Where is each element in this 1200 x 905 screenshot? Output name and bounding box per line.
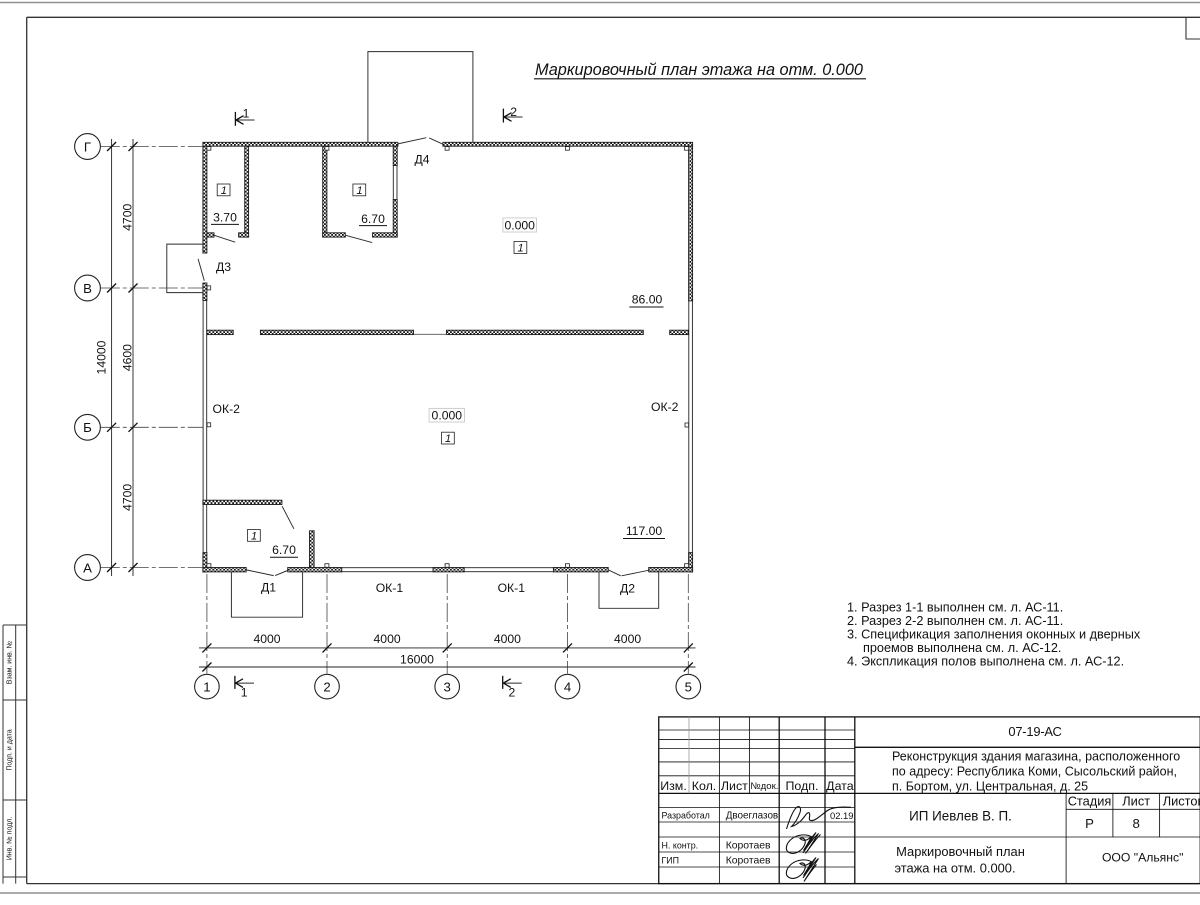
svg-text:Д3: Д3: [216, 260, 231, 274]
svg-text:проемов выполнена см. л. АС-12: проемов выполнена см. л. АС-12.: [863, 641, 1061, 655]
svg-text:5: 5: [685, 679, 692, 694]
svg-text:6.70: 6.70: [361, 212, 385, 226]
svg-text:Б: Б: [83, 420, 92, 435]
svg-text:1: 1: [445, 433, 451, 445]
svg-text:В: В: [83, 281, 92, 296]
svg-text:07-19-АС: 07-19-АС: [1008, 724, 1061, 739]
svg-text:этажа на отм. 0.000.: этажа на отм. 0.000.: [894, 860, 1015, 875]
svg-text:ОК-2: ОК-2: [651, 400, 679, 414]
svg-text:4000: 4000: [253, 632, 280, 646]
svg-text:ООО "Альянс": ООО "Альянс": [1102, 851, 1184, 865]
svg-text:по адресу: Республика Коми, Сы: по адресу: Республика Коми, Сысольский р…: [892, 764, 1177, 778]
svg-text:Взам. инв. №: Взам. инв. №: [7, 641, 14, 684]
svg-text:6.70: 6.70: [272, 543, 296, 557]
svg-text:1: 1: [251, 531, 257, 543]
svg-text:16000: 16000: [400, 653, 434, 667]
svg-text:4700: 4700: [121, 484, 135, 511]
svg-text:1: 1: [241, 686, 248, 700]
svg-text:Разработал: Разработал: [662, 810, 710, 820]
svg-text:4: 4: [564, 679, 571, 694]
svg-text:Листов: Листов: [1163, 794, 1200, 809]
svg-text:ИП Иевлев В. П.: ИП Иевлев В. П.: [909, 809, 1012, 824]
svg-text:Д4: Д4: [415, 153, 430, 167]
svg-text:Лист: Лист: [721, 779, 748, 793]
svg-text:ОК-1: ОК-1: [498, 581, 526, 595]
svg-text:3.70: 3.70: [213, 211, 237, 225]
svg-text:4. Экспликация полов выполнена: 4. Экспликация полов выполнена см. л. АС…: [847, 654, 1124, 668]
svg-text:2. Разрез 2-2 выполнен см. л.: 2. Разрез 2-2 выполнен см. л. АС-11.: [847, 614, 1063, 628]
svg-text:86.00: 86.00: [632, 293, 663, 307]
svg-text:Маркировочный план этажа на от: Маркировочный план этажа на отм. 0.000: [535, 61, 863, 79]
svg-text:А: А: [83, 560, 92, 575]
svg-text:4700: 4700: [121, 204, 135, 231]
svg-text:Р: Р: [1085, 816, 1094, 831]
svg-text:№док.: №док.: [750, 781, 778, 792]
svg-text:1: 1: [243, 107, 250, 121]
svg-text:0.000: 0.000: [504, 219, 535, 233]
svg-text:Г: Г: [84, 139, 91, 154]
svg-text:Изм.: Изм.: [660, 779, 687, 793]
svg-text:2: 2: [323, 679, 330, 694]
svg-text:02.19: 02.19: [830, 810, 853, 821]
svg-text:Коротаев: Коротаев: [726, 841, 771, 852]
svg-text:Двоеглазов: Двоеглазов: [726, 810, 779, 821]
svg-text:Подп.: Подп.: [786, 779, 819, 793]
svg-text:Дата: Дата: [826, 779, 854, 793]
svg-text:4000: 4000: [494, 632, 521, 646]
svg-text:Кол.: Кол.: [692, 779, 717, 793]
svg-text:4000: 4000: [374, 632, 401, 646]
svg-text:Подп. и дата: Подп. и дата: [7, 729, 14, 770]
svg-text:1: 1: [221, 185, 227, 197]
svg-text:2: 2: [510, 105, 517, 119]
svg-text:ОК-2: ОК-2: [213, 402, 241, 416]
svg-text:Стадия: Стадия: [1068, 794, 1112, 809]
svg-text:ОК-1: ОК-1: [376, 581, 404, 595]
svg-text:Инв. № подл.: Инв. № подл.: [7, 817, 14, 861]
svg-text:Коротаев: Коротаев: [726, 856, 771, 867]
svg-text:4000: 4000: [614, 632, 641, 646]
svg-text:Лист: Лист: [1122, 794, 1150, 809]
svg-text:ГИП: ГИП: [662, 855, 680, 865]
svg-text:2: 2: [509, 686, 516, 700]
svg-text:0.000: 0.000: [432, 409, 463, 423]
svg-text:Н. контр.: Н. контр.: [662, 840, 699, 850]
svg-text:117.00: 117.00: [626, 524, 663, 538]
svg-text:1: 1: [518, 243, 524, 255]
svg-text:3: 3: [444, 679, 451, 694]
svg-text:п. Бортом, ул. Центральная, д.: п. Бортом, ул. Центральная, д. 25: [892, 779, 1088, 793]
svg-text:Реконструкция здания магазина,: Реконструкция здания магазина, расположе…: [892, 749, 1180, 763]
svg-text:1. Разрез 1-1 выполнен см. л.: 1. Разрез 1-1 выполнен см. л. АС-11.: [847, 601, 1063, 615]
svg-text:8: 8: [1133, 816, 1140, 831]
svg-text:1: 1: [203, 679, 210, 694]
svg-text:Маркировочный план: Маркировочный план: [896, 844, 1025, 859]
svg-text:1: 1: [356, 185, 362, 197]
svg-text:Д1: Д1: [261, 581, 276, 595]
svg-text:14000: 14000: [95, 340, 109, 374]
svg-text:3. Спецификация заполнения око: 3. Спецификация заполнения оконных и две…: [847, 628, 1141, 642]
svg-text:4600: 4600: [121, 344, 135, 371]
svg-text:Д2: Д2: [620, 582, 635, 596]
